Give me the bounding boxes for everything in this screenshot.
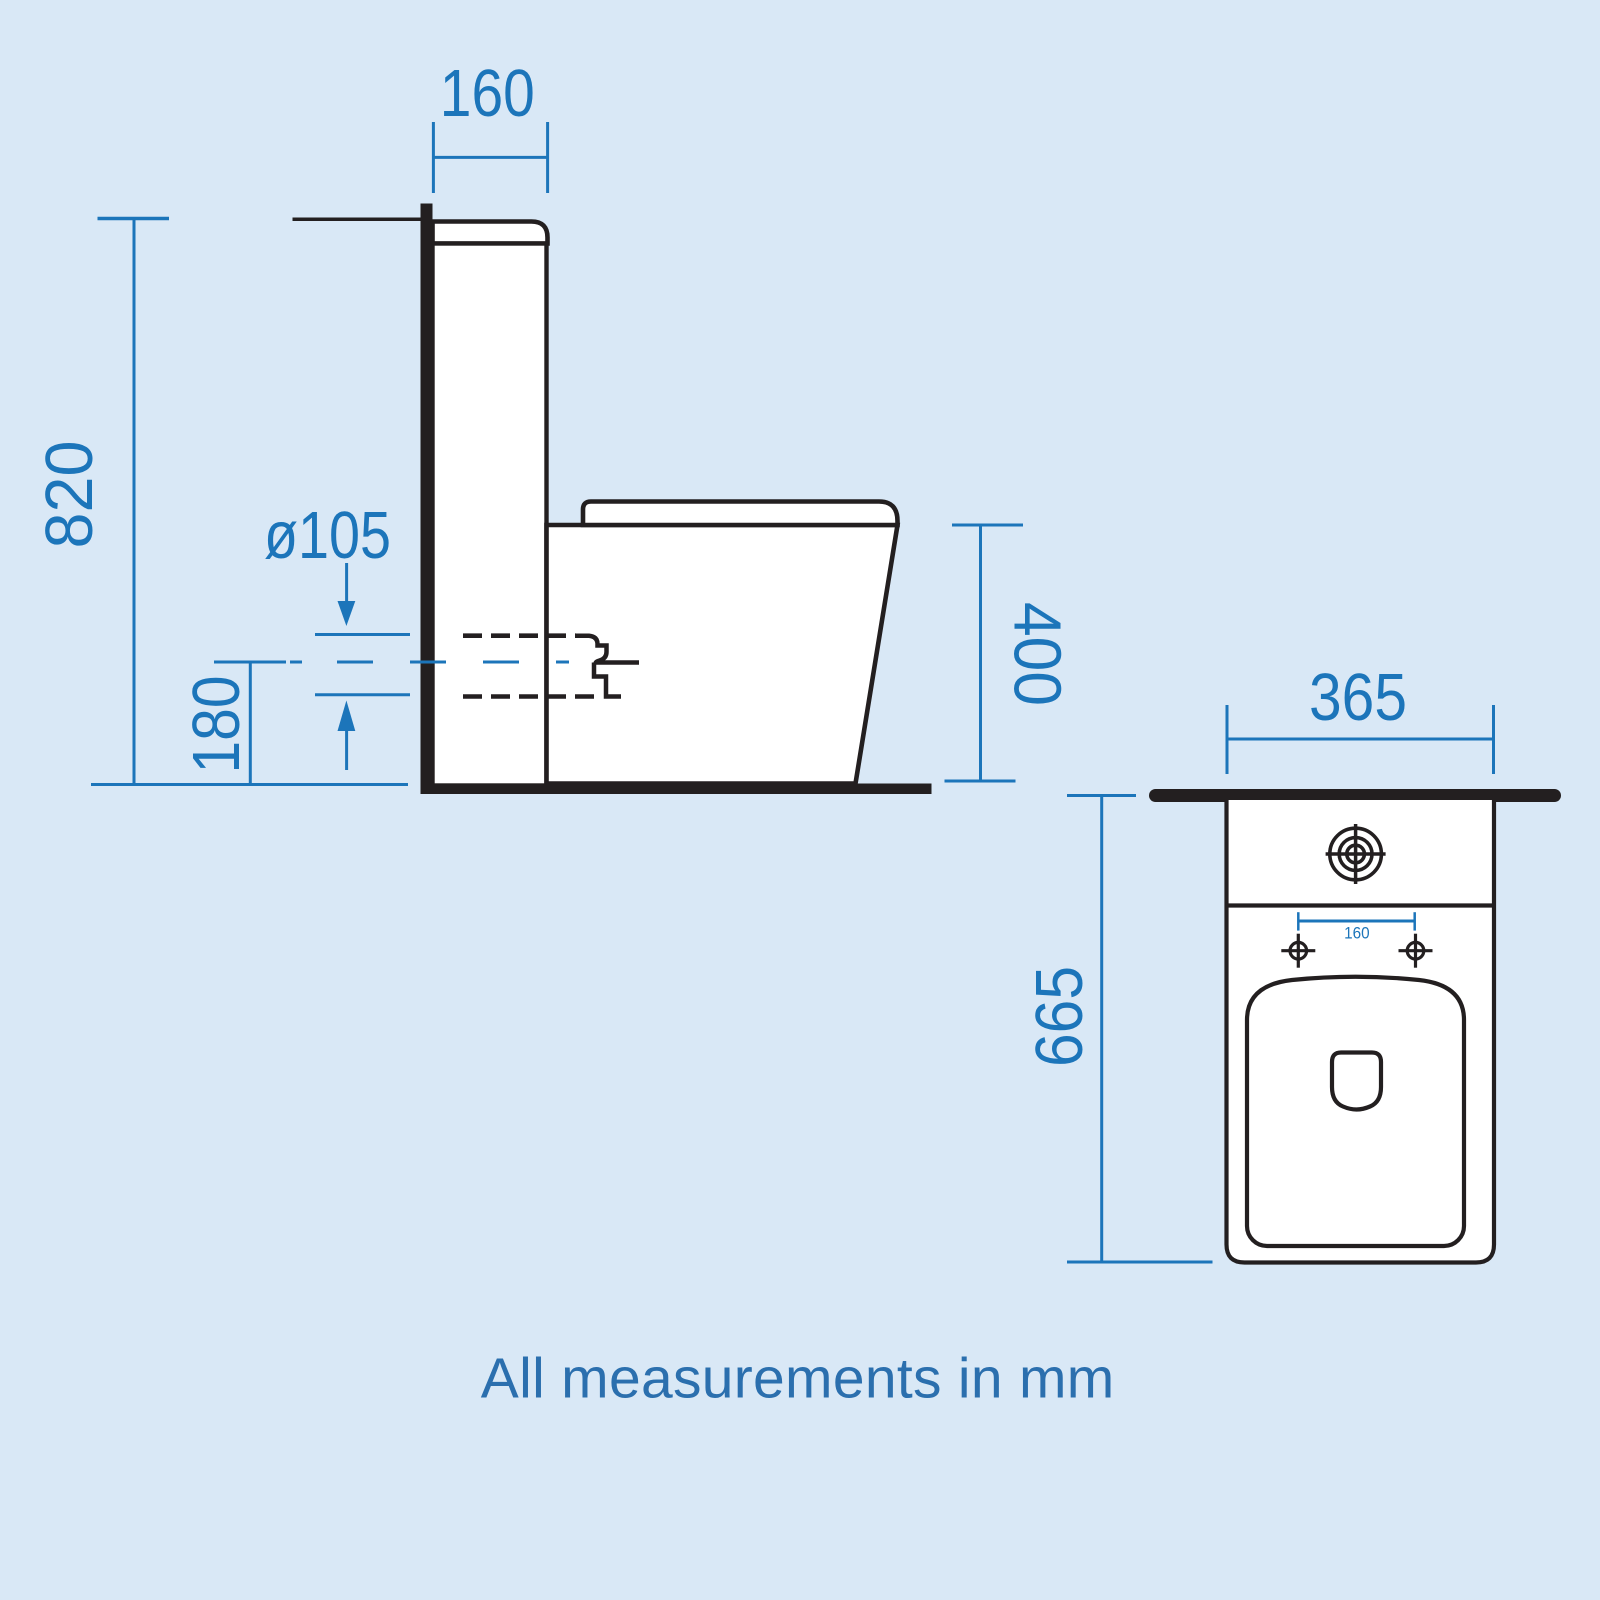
svg-text:400: 400	[1000, 602, 1075, 706]
svg-text:160: 160	[1344, 924, 1370, 943]
svg-text:365: 365	[1309, 660, 1407, 735]
svg-text:180: 180	[179, 676, 254, 774]
svg-text:820: 820	[32, 441, 107, 549]
svg-text:665: 665	[1022, 966, 1097, 1067]
svg-text:160: 160	[440, 56, 535, 131]
svg-text:All measurements in mm: All measurements in mm	[481, 1347, 1115, 1411]
svg-text:ø105: ø105	[264, 498, 391, 573]
